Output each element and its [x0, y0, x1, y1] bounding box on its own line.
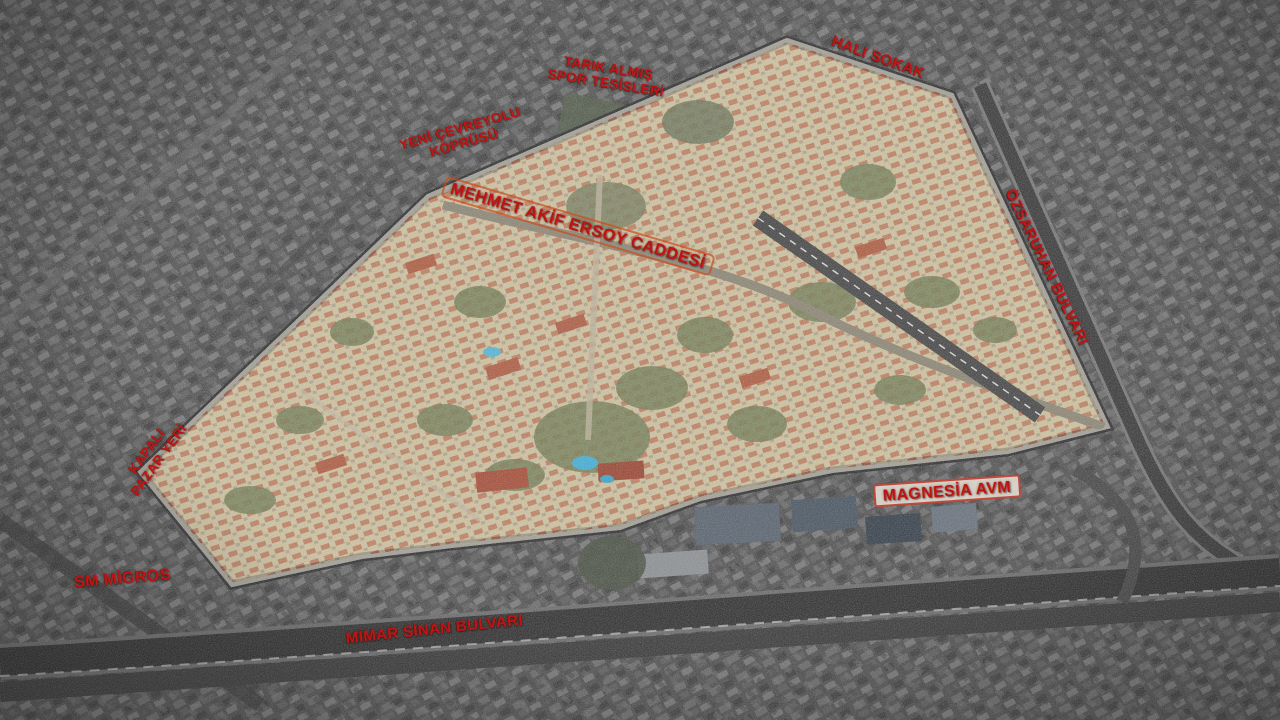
- photo-grain-overlay: [0, 0, 1280, 720]
- aerial-map-canvas: [0, 0, 1280, 720]
- aerial-map-image: TARIK ALMIŞ SPOR TESİSLERİ YENİ ÇEVREYOL…: [0, 0, 1280, 720]
